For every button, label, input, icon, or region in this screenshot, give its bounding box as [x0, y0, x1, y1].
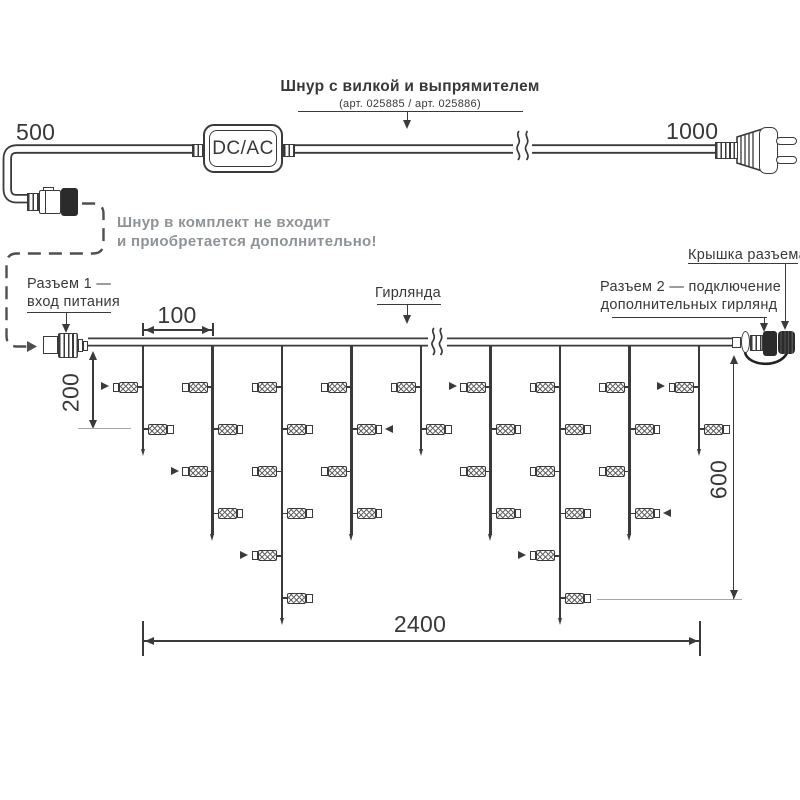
lamp-cap — [599, 467, 606, 476]
lamp — [635, 508, 654, 519]
lamp-cap — [182, 383, 189, 392]
cord-break-icon — [517, 131, 520, 160]
lamp-stub — [625, 386, 630, 388]
lamp-cap — [182, 467, 189, 476]
lamp-stub — [213, 428, 218, 430]
drop-tip-icon — [210, 534, 214, 541]
lamp — [397, 382, 416, 393]
lamp-cap — [321, 383, 328, 392]
cap-label: Крышка разъема — [688, 247, 800, 265]
cord-subtitle: (арт. 025885 / арт. 025886) — [280, 98, 540, 110]
lamp-stub — [491, 513, 496, 515]
lamp-arrow-icon — [171, 467, 179, 475]
lamp-cap — [584, 509, 591, 518]
lamp-arrow-icon — [101, 382, 109, 390]
lamp-cap — [584, 425, 591, 434]
lamp — [189, 382, 208, 393]
diagram-canvas: 500 1000 DC/AC Шнур с вилкой и выпрямите… — [0, 0, 800, 800]
cord-title-arrow-icon — [403, 120, 411, 129]
garland-arrow-icon — [403, 315, 411, 324]
end-connector-stub — [732, 337, 741, 348]
lamp-cap — [376, 509, 383, 518]
lamp — [467, 382, 486, 393]
lamp-stub — [416, 386, 421, 388]
dim-200-ref — [78, 428, 131, 429]
plug-prong-top — [776, 137, 797, 145]
lamp — [536, 550, 555, 561]
dim-600-ref — [597, 599, 742, 600]
dashed-cord-path — [7, 204, 104, 347]
lamp — [496, 424, 515, 435]
lamp-cap — [460, 467, 467, 476]
converter-box-inner: DC/AC — [209, 130, 277, 167]
lamp — [426, 424, 445, 435]
lamp-stub — [352, 428, 357, 430]
lamp — [119, 382, 138, 393]
dim-200: 200 — [58, 363, 85, 423]
connector1-label-line1: Разъем 1 — — [27, 276, 111, 294]
lamp-cap — [167, 425, 174, 434]
dim-2400-line — [144, 640, 699, 641]
lamp-stub — [277, 471, 282, 473]
lamp-arrow-icon — [385, 425, 393, 433]
cord-title: Шнур с вилкой и выпрямителем — [280, 78, 540, 96]
lamp — [357, 508, 376, 519]
lamp-stub — [491, 428, 496, 430]
drop-wire — [628, 345, 630, 535]
lamp-stub — [138, 386, 143, 388]
dim-1000: 1000 — [666, 118, 718, 145]
lamp — [606, 382, 625, 393]
end-connector-ribbed — [750, 335, 763, 351]
lamp-cap — [252, 551, 259, 560]
drop-tip-icon — [558, 618, 562, 625]
lamp-arrow-icon — [663, 509, 671, 517]
connector2-label-line1: Разъем 2 — подключение — [600, 279, 778, 297]
lamp-cap — [376, 425, 383, 434]
lamp-cap — [460, 383, 467, 392]
lamp-stub — [277, 555, 282, 557]
lamp — [565, 593, 584, 604]
garland-label: Гирлянда — [348, 285, 468, 303]
cap-arrow-icon — [781, 321, 789, 330]
plug-grip — [715, 142, 738, 159]
lamp — [258, 466, 277, 477]
lamp-stub — [347, 471, 352, 473]
lamp-cap — [515, 509, 522, 518]
lamp-arrow-icon — [518, 551, 526, 559]
lamp — [328, 382, 347, 393]
dim-100: 100 — [147, 302, 207, 329]
lamp — [189, 466, 208, 477]
connector1-label-line2: вход питания — [27, 294, 120, 312]
lamp-stub — [352, 513, 357, 515]
cord-connector-cap — [61, 188, 78, 216]
drop-tip-icon — [627, 534, 631, 541]
lamp-cap — [252, 383, 259, 392]
lamp — [565, 424, 584, 435]
lamp — [148, 424, 167, 435]
end-connector-body — [763, 331, 777, 356]
lamp-cap — [306, 425, 313, 434]
dim-600-line — [733, 357, 734, 599]
lamp-stub — [277, 386, 282, 388]
plug-head — [759, 127, 778, 174]
converter-stub-left — [192, 144, 203, 157]
lamp-arrow-icon — [240, 551, 248, 559]
lamp-cap — [445, 425, 452, 434]
lamp — [357, 424, 376, 435]
lamp — [675, 382, 694, 393]
connector-cap — [778, 331, 795, 354]
lamp-cap — [530, 467, 537, 476]
cord-connector-ribbed — [27, 193, 39, 211]
drop-tip-icon — [141, 449, 145, 456]
lamp-cap — [723, 425, 730, 434]
lamp-cap — [306, 509, 313, 518]
lamp-cap — [584, 594, 591, 603]
drop-tip-icon — [697, 449, 701, 456]
dashed-path-arrow-icon — [27, 341, 37, 352]
lamp — [496, 508, 515, 519]
lamp-cap — [237, 425, 244, 434]
plug-prong-bottom — [776, 156, 797, 164]
drop-wire — [489, 345, 491, 535]
lamp — [218, 508, 237, 519]
lamp — [287, 593, 306, 604]
note-line2: и приобретается дополнительно! — [117, 233, 377, 252]
dim-2400: 2400 — [380, 611, 460, 638]
drop-tip-icon — [280, 618, 284, 625]
lamp-cap — [530, 383, 537, 392]
lamp-stub — [347, 386, 352, 388]
drop-tip-icon — [488, 534, 492, 541]
lamp-stub — [630, 428, 635, 430]
lamp-stub — [625, 471, 630, 473]
wire-break-icon — [432, 328, 435, 355]
lamp — [704, 424, 723, 435]
lamp — [287, 424, 306, 435]
lamp-cap — [515, 425, 522, 434]
cord-title-leader — [298, 111, 523, 112]
lamp-stub — [213, 513, 218, 515]
lamp-stub — [694, 386, 699, 388]
lamp-stub — [486, 471, 491, 473]
input-connector-ribbed — [58, 333, 78, 358]
lamp-cap — [237, 509, 244, 518]
drop-wire — [350, 345, 352, 535]
lamp-cap — [391, 383, 398, 392]
converter-stub-right — [283, 144, 295, 157]
lamp — [328, 466, 347, 477]
drop-tip-icon — [419, 449, 423, 456]
drop-wire — [698, 345, 700, 450]
lamp-cap — [113, 383, 120, 392]
lamp-cap — [252, 467, 259, 476]
lamp — [536, 466, 555, 477]
connector1-arrow-icon — [62, 324, 70, 333]
lamp-cap — [654, 425, 661, 434]
lamp — [635, 424, 654, 435]
lamp-stub — [208, 471, 213, 473]
connector2-leader — [612, 317, 767, 318]
lamp-cap — [654, 509, 661, 518]
lamp — [258, 382, 277, 393]
connector2-label-line2: дополнительных гирлянд — [600, 297, 778, 315]
plug-body — [737, 130, 761, 171]
lamp — [287, 508, 306, 519]
lamp-stub — [208, 386, 213, 388]
lamp-stub — [630, 513, 635, 515]
lamp — [258, 550, 277, 561]
lamp-cap — [669, 383, 676, 392]
lamp-stub — [555, 386, 560, 388]
converter-label: DC/AC — [212, 138, 274, 160]
lamp-arrow-icon — [449, 382, 457, 390]
dim-600: 600 — [706, 450, 733, 510]
dim-200-line — [92, 354, 93, 427]
cap-leader — [688, 263, 798, 264]
lamp-stub — [555, 471, 560, 473]
connector1-leader — [27, 312, 111, 313]
lamp — [467, 466, 486, 477]
cord-connector-body — [39, 190, 61, 214]
lamp-stub — [486, 386, 491, 388]
lamp-cap — [321, 467, 328, 476]
lamp — [565, 508, 584, 519]
lamp-cap — [599, 383, 606, 392]
cord-left — [7, 149, 205, 199]
lamp — [536, 382, 555, 393]
note-line1: Шнур в комплект не входит — [117, 214, 330, 233]
lamp-cap — [306, 594, 313, 603]
lamp — [218, 424, 237, 435]
input-connector-body — [43, 336, 58, 354]
lamp-arrow-icon — [657, 382, 665, 390]
dim-500: 500 — [16, 119, 55, 146]
end-connector-ring — [741, 331, 750, 353]
lamp-cap — [530, 551, 537, 560]
lamp-stub — [555, 555, 560, 557]
drop-wire — [142, 345, 144, 450]
lamp — [606, 466, 625, 477]
garland-leader — [377, 304, 441, 305]
drop-wire — [211, 345, 213, 535]
drop-wire — [420, 345, 422, 450]
drop-tip-icon — [349, 534, 353, 541]
